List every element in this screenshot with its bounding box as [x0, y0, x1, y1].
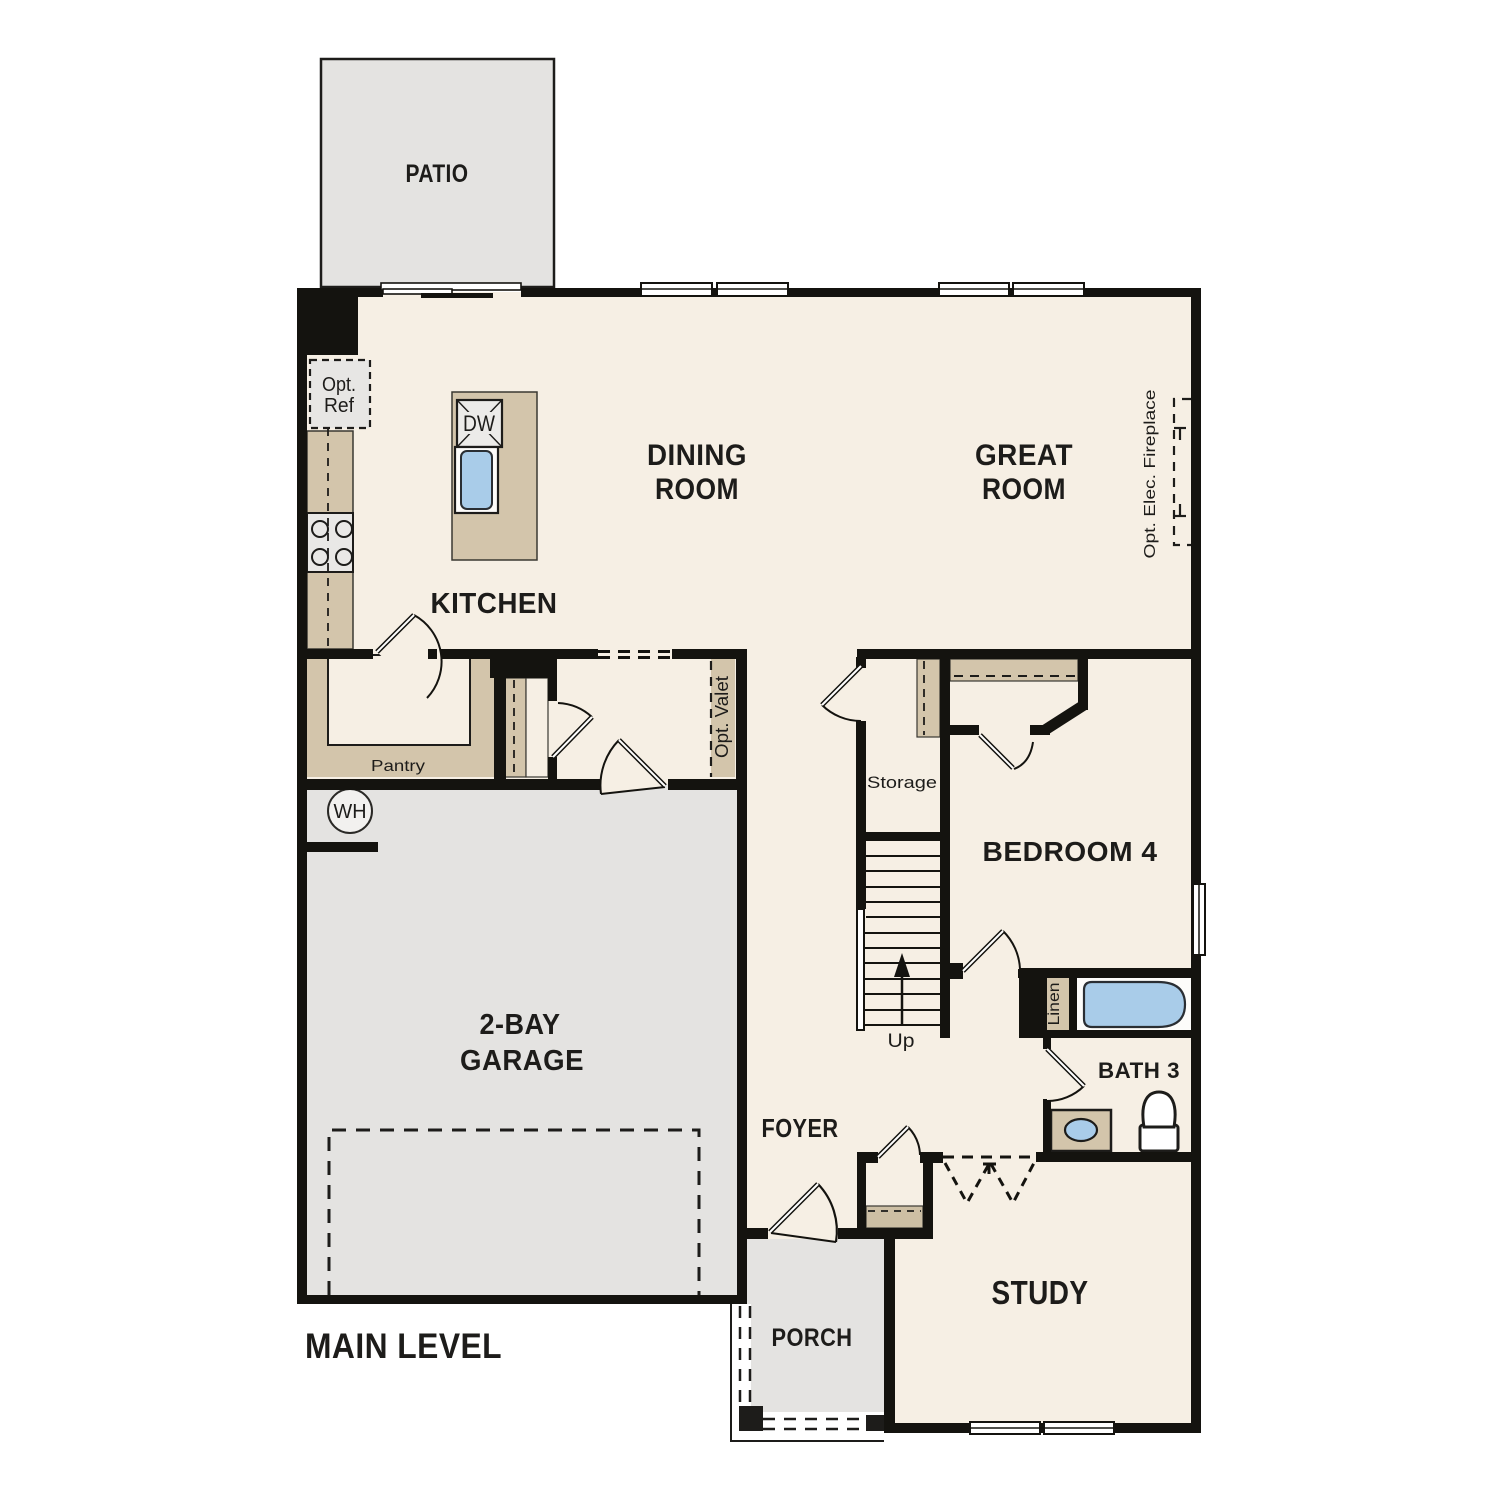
- svg-text:Up: Up: [888, 1031, 915, 1052]
- svg-text:Ref: Ref: [324, 395, 354, 417]
- svg-text:DINING: DINING: [647, 439, 747, 472]
- svg-text:Opt. Elec. Fireplace: Opt. Elec. Fireplace: [1142, 389, 1159, 558]
- svg-text:PORCH: PORCH: [772, 1324, 853, 1352]
- svg-text:ROOM: ROOM: [655, 473, 739, 506]
- svg-text:Linen: Linen: [1046, 983, 1063, 1026]
- svg-text:MAIN LEVEL: MAIN LEVEL: [305, 1327, 502, 1366]
- svg-text:Opt. Valet: Opt. Valet: [712, 676, 732, 758]
- svg-text:2-BAY: 2-BAY: [480, 1009, 561, 1041]
- svg-text:GARAGE: GARAGE: [460, 1045, 584, 1077]
- svg-text:BEDROOM 4: BEDROOM 4: [983, 836, 1158, 867]
- svg-text:Storage: Storage: [867, 773, 937, 792]
- svg-text:FOYER: FOYER: [762, 1113, 839, 1143]
- svg-text:WH: WH: [334, 801, 367, 823]
- svg-text:GREAT: GREAT: [975, 439, 1073, 472]
- svg-text:Pantry: Pantry: [371, 758, 425, 775]
- svg-text:DW: DW: [463, 411, 495, 436]
- svg-text:STUDY: STUDY: [992, 1274, 1089, 1311]
- svg-text:Opt.: Opt.: [322, 374, 356, 396]
- svg-text:ROOM: ROOM: [982, 473, 1066, 506]
- svg-text:BATH 3: BATH 3: [1098, 1058, 1180, 1083]
- svg-text:KITCHEN: KITCHEN: [431, 588, 558, 620]
- svg-text:PATIO: PATIO: [406, 160, 469, 188]
